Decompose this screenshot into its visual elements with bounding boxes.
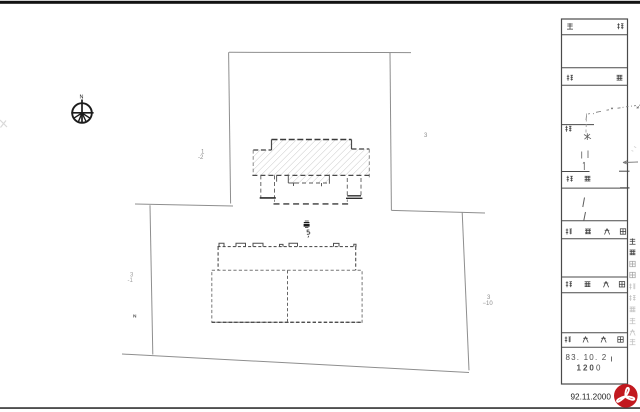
svg-text:0: 0: [596, 364, 601, 373]
svg-text:120: 120: [577, 364, 596, 373]
svg-text:-2: -2: [198, 155, 204, 161]
svg-text:−10: −10: [483, 301, 494, 307]
svg-text:N: N: [133, 314, 137, 320]
svg-text:83. 10. 2: 83. 10. 2: [566, 353, 608, 362]
svg-text:92.11.2000: 92.11.2000: [571, 393, 612, 402]
svg-text:N: N: [80, 95, 84, 101]
svg-text:-1: -1: [128, 278, 134, 284]
